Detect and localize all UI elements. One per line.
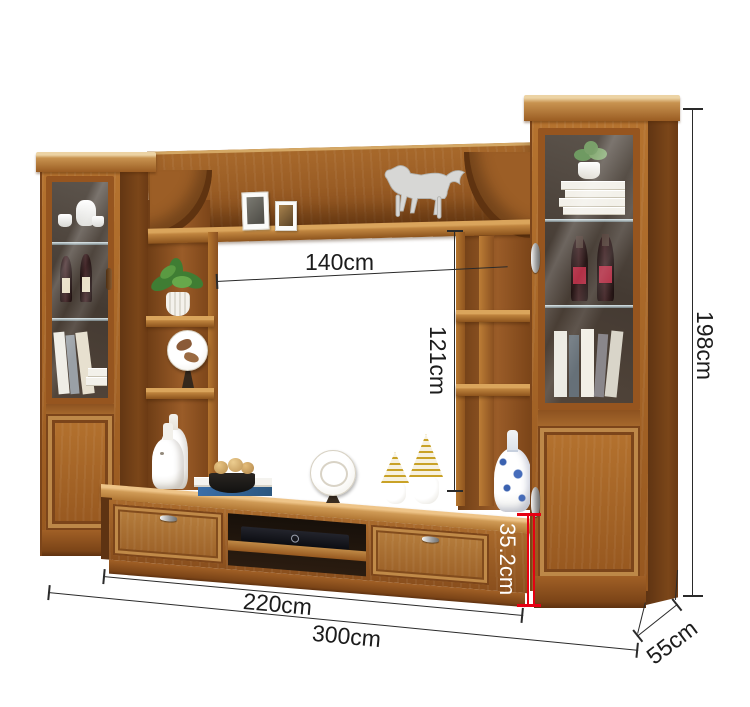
dim-label-stand-width: 220cm: [242, 588, 313, 621]
furniture-dimension-diagram: 140cm 121cm 198cm 35.2cm 220cm 300cm 55c…: [0, 0, 750, 707]
right-shelf-board: [456, 310, 530, 322]
glass-reflection: [52, 182, 108, 398]
white-textured-vase: [152, 438, 184, 489]
fruit: [228, 458, 243, 472]
photo-frame-large: [241, 192, 269, 231]
drawer-handle: [160, 515, 177, 522]
fruit: [214, 461, 228, 474]
right-cabinet-plinth: [534, 576, 646, 608]
white-pot: [385, 483, 406, 504]
drawer-handle: [422, 536, 439, 543]
decorative-plate-on-stand: [310, 450, 356, 496]
right-cabinet-glass-door: [538, 128, 640, 410]
dim-line-stand-height-left-rail: [527, 516, 529, 604]
gold-wire-cone-large: [409, 434, 443, 477]
tv-stand-right-drawer: [371, 525, 489, 585]
dim-line-stand-height-right-rail: [533, 516, 535, 604]
dim-label-overall-width: 300cm: [311, 620, 382, 653]
right-column-front-pillar: [479, 236, 494, 506]
left-shelf-board: [146, 388, 214, 399]
tv-opening-right-pillar: [456, 232, 465, 506]
dim-label-tv-opening-height: 121cm: [424, 326, 451, 395]
dim-cap-stand-height-bottom: [517, 604, 541, 607]
dim-label-tv-opening-width: 140cm: [305, 249, 374, 276]
white-pot: [413, 477, 439, 504]
tv-stand-media-compartment: [228, 513, 366, 576]
silver-horse-figurine: [378, 162, 468, 226]
right-cabinet-side: [646, 100, 678, 605]
left-cabinet-door-handle: [106, 268, 112, 290]
glass-reflection: [545, 135, 633, 403]
right-cabinet-lower-door: [538, 426, 640, 578]
tv-stand-left-drawer: [113, 504, 223, 564]
photo-frame-small: [275, 201, 297, 231]
left-shelf-board: [146, 316, 214, 327]
right-cabinet-rail: [538, 410, 640, 426]
decorative-plate: [167, 330, 208, 371]
dim-line-tv-opening-height: [454, 230, 455, 492]
left-cabinet-glass-door: [46, 176, 114, 404]
right-shelf-board: [456, 384, 530, 396]
fruit-bowl: [209, 473, 255, 493]
right-cabinet-glass-handle: [531, 243, 540, 273]
left-cabinet-rail: [46, 404, 114, 414]
gold-wire-cone-small: [381, 452, 409, 483]
dim-label-overall-height: 198cm: [691, 311, 718, 380]
blue-porcelain-vase: [494, 448, 532, 512]
dim-label-depth: 55cm: [642, 615, 703, 670]
tv-opening-left-pillar: [208, 232, 218, 490]
dim-label-stand-height: 35.2cm: [494, 523, 520, 595]
left-cabinet-crown: [36, 152, 156, 172]
right-cabinet-crown: [524, 95, 680, 121]
dim-cap-stand-height-top: [517, 513, 541, 516]
plant-pot: [166, 292, 190, 316]
